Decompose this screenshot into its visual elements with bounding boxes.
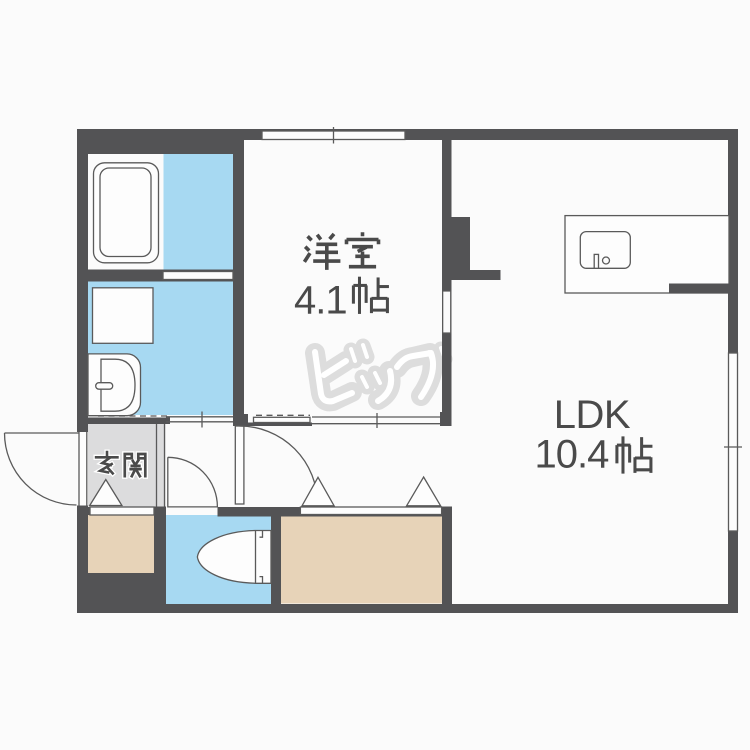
svg-text:LDK: LDK	[554, 393, 631, 437]
svg-text:4.1: 4.1	[294, 279, 347, 323]
svg-text:10.4: 10.4	[535, 433, 610, 477]
